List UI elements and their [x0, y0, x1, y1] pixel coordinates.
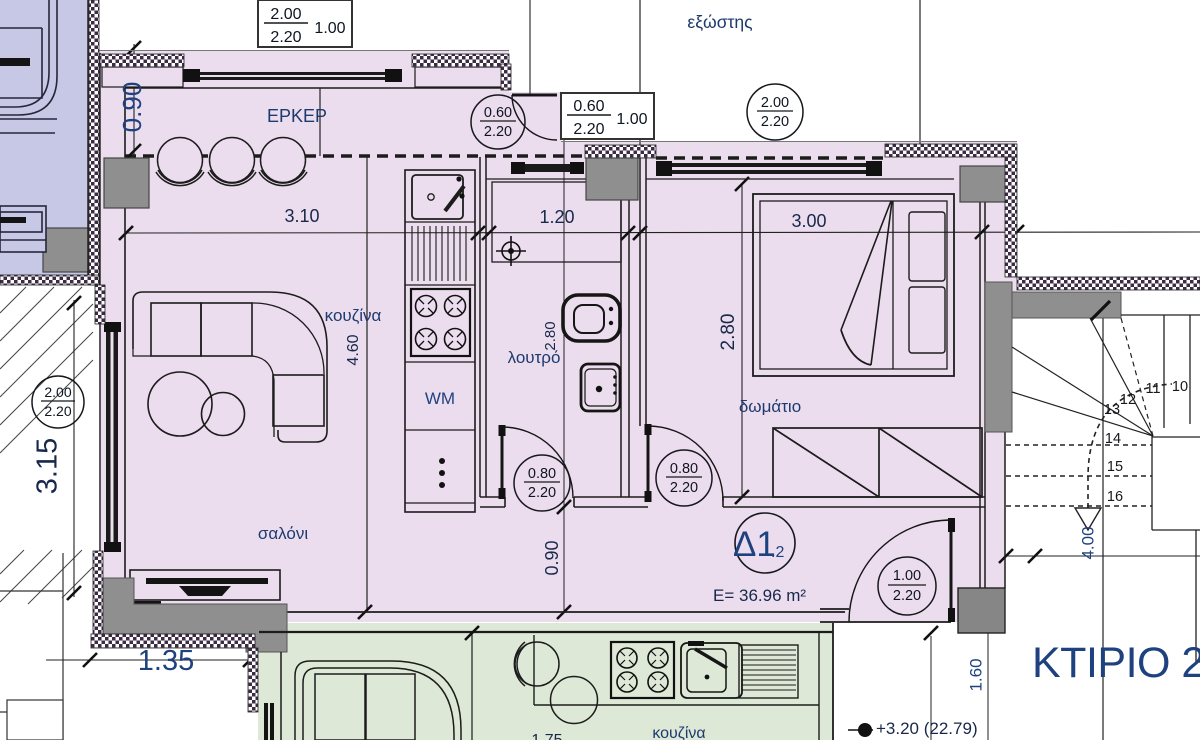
- svg-text:0.90: 0.90: [117, 82, 147, 133]
- svg-text:2.20: 2.20: [484, 124, 512, 140]
- svg-text:2.20: 2.20: [893, 588, 921, 604]
- svg-text:4.60: 4.60: [345, 334, 362, 365]
- svg-text:δωμάτιο: δωμάτιο: [739, 397, 801, 416]
- svg-text:2.00: 2.00: [44, 384, 71, 400]
- svg-text:κουζίνα: κουζίνα: [652, 725, 705, 740]
- svg-text:0.60: 0.60: [573, 98, 604, 115]
- svg-text:0.80: 0.80: [528, 466, 556, 482]
- svg-text:κουζίνα: κουζίνα: [325, 306, 382, 325]
- svg-text:2.80: 2.80: [542, 321, 559, 350]
- svg-text:2.20: 2.20: [44, 403, 71, 419]
- svg-text:11: 11: [1145, 381, 1160, 397]
- svg-text:2.20: 2.20: [670, 480, 698, 496]
- svg-text:ΕΡΚΕΡ: ΕΡΚΕΡ: [267, 106, 327, 126]
- svg-text:1.35: 1.35: [138, 645, 194, 677]
- svg-text:1.60: 1.60: [966, 658, 985, 691]
- svg-text:WM: WM: [425, 389, 455, 408]
- svg-text:3.10: 3.10: [284, 206, 319, 226]
- svg-text:0.60: 0.60: [484, 105, 512, 121]
- svg-text:2.00: 2.00: [270, 6, 301, 23]
- svg-text:+3.20 (22.79): +3.20 (22.79): [876, 719, 978, 738]
- svg-text:2.20: 2.20: [270, 29, 301, 46]
- svg-text:ΚΤΙΡΙΟ 2: ΚΤΙΡΙΟ 2: [1032, 639, 1200, 687]
- svg-text:1.75: 1.75: [531, 732, 562, 740]
- svg-text:1.00: 1.00: [893, 568, 921, 584]
- svg-text:Δ1: Δ1: [733, 525, 776, 564]
- svg-text:10: 10: [1172, 379, 1188, 395]
- svg-text:15: 15: [1107, 459, 1123, 475]
- svg-text:εξώστης: εξώστης: [687, 12, 752, 32]
- svg-text:λουτρό: λουτρό: [508, 348, 561, 367]
- svg-text:2.80: 2.80: [718, 314, 739, 351]
- svg-text:E= 36.96 m²: E= 36.96 m²: [713, 586, 806, 605]
- svg-text:0.80: 0.80: [670, 461, 698, 477]
- svg-text:16: 16: [1107, 489, 1123, 505]
- svg-text:2.20: 2.20: [528, 485, 556, 501]
- svg-text:2.00: 2.00: [761, 95, 789, 111]
- svg-text:4.00: 4.00: [1078, 526, 1097, 559]
- svg-text:12: 12: [1120, 392, 1136, 408]
- svg-text:3.00: 3.00: [791, 211, 826, 231]
- svg-text:σαλόνι: σαλόνι: [258, 524, 309, 543]
- svg-text:14: 14: [1105, 431, 1121, 447]
- svg-text:.2: .2: [771, 544, 784, 561]
- svg-text:2.20: 2.20: [761, 114, 789, 130]
- svg-text:2.20: 2.20: [573, 121, 604, 138]
- svg-text:1.00: 1.00: [314, 20, 345, 37]
- svg-text:13: 13: [1104, 402, 1120, 418]
- svg-text:3.15: 3.15: [32, 438, 64, 494]
- svg-text:0.90: 0.90: [542, 540, 562, 575]
- svg-text:1.00: 1.00: [616, 111, 647, 128]
- svg-text:1.20: 1.20: [539, 207, 574, 227]
